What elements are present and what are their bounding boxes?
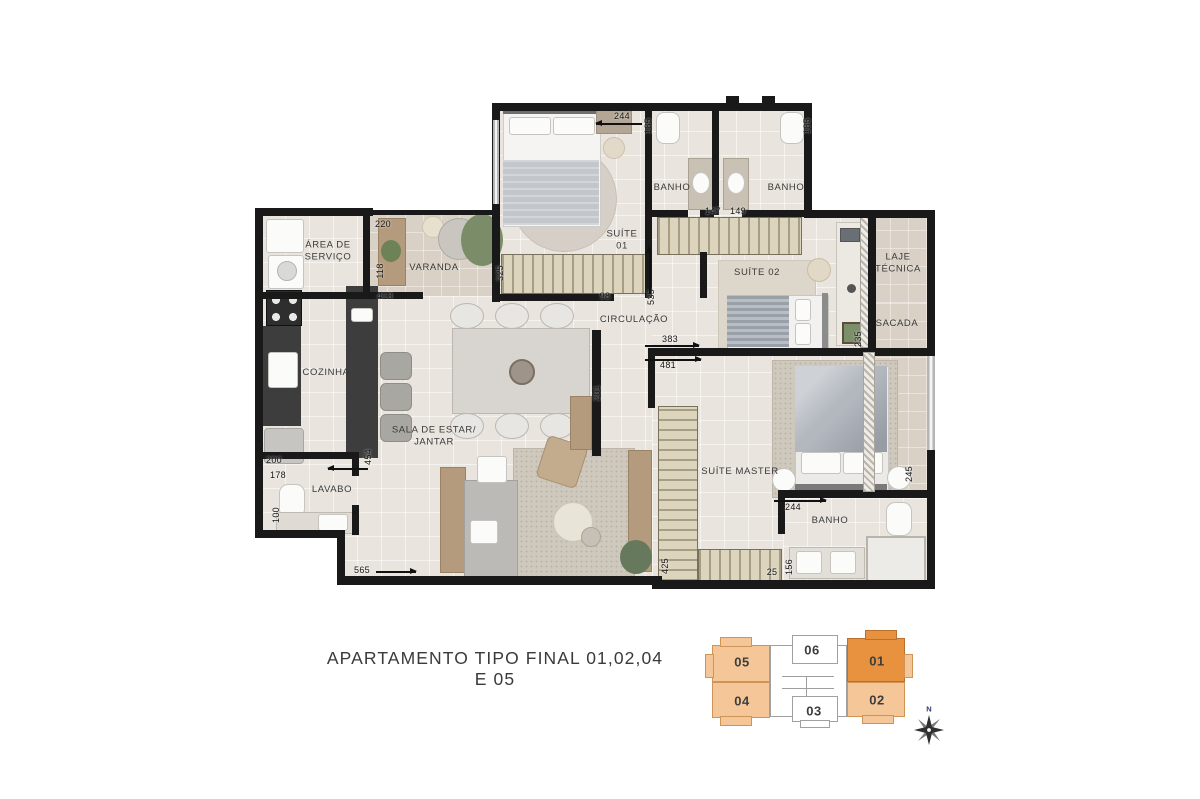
- keyplan-core-line: [806, 676, 807, 696]
- stool: [603, 137, 625, 159]
- room-label: BANHO: [812, 515, 849, 527]
- island-sink: [351, 308, 373, 322]
- coffee-table: [477, 456, 507, 483]
- wall: [712, 103, 719, 215]
- room-label: BANHO: [768, 182, 805, 194]
- wall: [363, 212, 370, 296]
- dimension-label: 481: [660, 360, 676, 370]
- sideboard: [440, 467, 466, 573]
- wall: [778, 498, 785, 534]
- wall: [778, 490, 935, 498]
- dimension-label: 235: [853, 331, 863, 347]
- dimension-label: 25: [767, 567, 778, 577]
- dimension-label: 565: [354, 565, 370, 575]
- dimension-label: 118: [375, 263, 385, 278]
- plant: [381, 240, 401, 262]
- dimension-label: 100: [271, 507, 281, 523]
- dimension-label: 244: [614, 111, 630, 121]
- wall: [255, 530, 343, 538]
- room-label: ÁREA DE SERVIÇO: [298, 240, 358, 265]
- duvet: [503, 160, 599, 225]
- dining-chair: [540, 303, 574, 329]
- wall: [927, 210, 935, 308]
- room-label: BANHO: [654, 182, 691, 194]
- room-label: SUÍTE 02: [734, 267, 780, 279]
- wall: [255, 210, 263, 538]
- sink: [268, 352, 298, 388]
- sink: [830, 551, 856, 574]
- wall: [652, 580, 935, 589]
- wardrobe: [657, 217, 802, 255]
- keyplan-unit-05-notch: [720, 637, 752, 647]
- dining-chair: [495, 413, 529, 439]
- pillow: [795, 323, 811, 345]
- shower: [866, 536, 926, 584]
- sink: [796, 551, 822, 574]
- washer-drum: [277, 261, 297, 281]
- dimension-label: 200: [266, 455, 282, 465]
- floor-plan-page: ÁREA DE SERVIÇO VARANDA SUÍTE 01 BANHO B…: [0, 0, 1200, 799]
- wall: [492, 103, 812, 111]
- page-title: APARTAMENTO TIPO FINAL 01,02,04 E 05: [325, 648, 665, 690]
- keyplan-unit-04-notch: [720, 716, 752, 726]
- keyplan-core-line: [782, 676, 834, 677]
- wall: [648, 348, 935, 356]
- dimension-arrow: [376, 571, 416, 573]
- keyplan-unit-tab: [904, 654, 913, 678]
- dimension-arrow: [328, 468, 368, 470]
- room-label: SALA DE ESTAR/ JANTAR: [384, 425, 484, 450]
- keyplan-unit-label: 04: [734, 694, 749, 709]
- dimension-arrow: [649, 248, 651, 294]
- room-label: SACADA: [876, 318, 919, 330]
- dimension-label: 185: [643, 118, 653, 134]
- room-label: LAJE TÉCNICA: [871, 252, 925, 277]
- dimension-label: 245: [904, 466, 914, 482]
- keyplan-unit-label: 05: [734, 655, 749, 670]
- cabinet: [570, 396, 592, 450]
- room-label: LAVABO: [312, 484, 352, 496]
- dimension-label: 220: [375, 219, 391, 229]
- dimension-label: 325: [495, 265, 505, 281]
- dimension-label: 98: [600, 291, 611, 301]
- dimension-label: 425: [660, 558, 670, 574]
- dimension-label: 156: [784, 559, 794, 575]
- pillow: [795, 299, 811, 321]
- wall: [352, 452, 359, 476]
- dimension-arrow: [596, 123, 642, 125]
- dining-chair: [540, 413, 574, 439]
- bar-stool: [380, 352, 412, 380]
- wall: [261, 292, 423, 299]
- headboard: [822, 293, 828, 349]
- room-label: CIRCULAÇÃO: [600, 314, 668, 326]
- room-label: SUÍTE 01: [602, 229, 642, 254]
- dimension-label: 244: [785, 502, 801, 512]
- keyplan-unit-label: 02: [869, 693, 884, 708]
- keyplan-unit-label: 03: [806, 704, 821, 719]
- window: [927, 356, 935, 452]
- centerpiece: [509, 359, 535, 385]
- keyplan-core-line: [782, 688, 834, 689]
- dining-chair: [450, 303, 484, 329]
- dimension-arrow: [645, 345, 699, 347]
- dimension-label: 201: [592, 385, 602, 401]
- room-label: COZINHA: [303, 367, 350, 379]
- wall: [337, 576, 662, 585]
- pillow: [801, 452, 841, 474]
- wardrobe: [501, 254, 647, 294]
- wall: [369, 210, 496, 215]
- window: [493, 120, 499, 204]
- side-table: [581, 527, 601, 547]
- dimension-label: 178: [270, 470, 286, 480]
- wall: [492, 294, 614, 301]
- dimension-label: 413: [377, 291, 393, 301]
- curtain-hatch: [863, 352, 875, 492]
- toilet: [780, 112, 804, 144]
- dimension-label: 149: [730, 206, 746, 216]
- keyplan-unit-tab: [705, 654, 714, 678]
- room-label: SUÍTE MASTER: [701, 466, 778, 478]
- keyplan-unit-02-notch: [862, 715, 894, 724]
- keyplan-unit-label: 06: [804, 643, 819, 658]
- dimension-arrow: [774, 500, 826, 502]
- duvet: [727, 295, 789, 347]
- wardrobe: [658, 406, 698, 582]
- plan-exterior: [255, 538, 337, 582]
- pillow: [553, 117, 595, 135]
- toilet: [656, 112, 680, 144]
- room-label: VARANDA: [409, 262, 458, 274]
- dimension-label: 454: [363, 449, 373, 465]
- dimension-label: 147: [705, 206, 721, 216]
- dimension-label: 185: [802, 118, 812, 134]
- sink: [318, 514, 348, 531]
- wall: [927, 450, 935, 589]
- dimension-label: 535: [646, 289, 656, 305]
- keyplan-unit-label: 01: [869, 654, 884, 669]
- dimension-label: 383: [662, 334, 678, 344]
- sink: [692, 172, 710, 194]
- laptop: [840, 228, 860, 242]
- wall: [742, 210, 812, 217]
- dining-chair: [495, 303, 529, 329]
- wall: [352, 505, 359, 535]
- sofa-pillow: [470, 520, 498, 544]
- dimension-arrow: [645, 359, 701, 361]
- plant: [620, 540, 652, 574]
- keyplan-unit-01-notch: [865, 630, 897, 640]
- lamp: [847, 284, 856, 293]
- keyplan-unit-03-notch: [800, 720, 830, 728]
- wall: [700, 252, 707, 298]
- wardrobe: [698, 549, 782, 583]
- wall: [648, 356, 655, 408]
- toilet: [886, 502, 912, 536]
- wall: [255, 208, 373, 216]
- sink: [727, 172, 745, 194]
- bar-stool: [380, 383, 412, 411]
- compass-icon: [911, 712, 947, 748]
- pillow: [509, 117, 551, 135]
- chair: [807, 258, 831, 282]
